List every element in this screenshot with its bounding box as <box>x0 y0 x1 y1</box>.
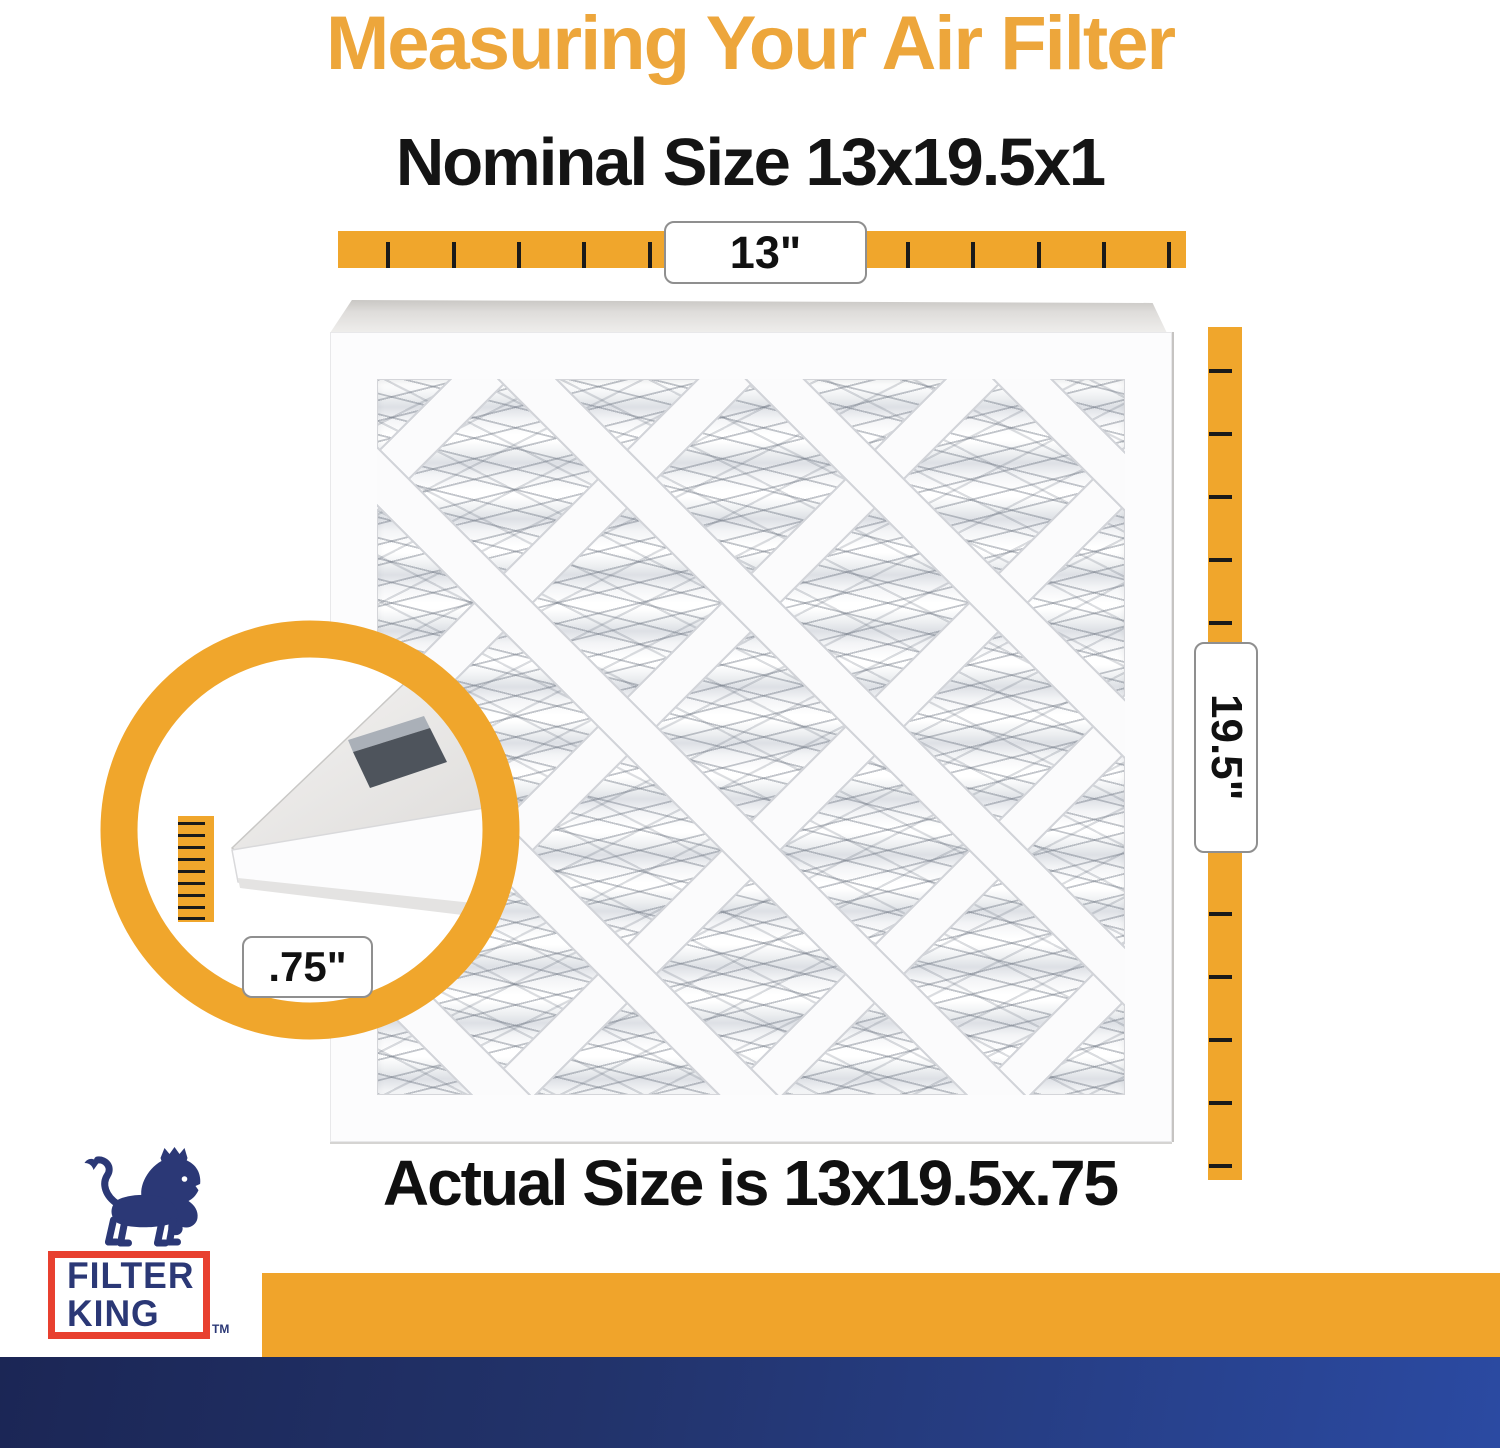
ruler-tick <box>906 242 910 268</box>
height-label-text: 19.5" <box>1201 694 1251 801</box>
filter-king-badge: FILTER KING <box>48 1251 210 1339</box>
ruler-tick <box>1209 975 1232 979</box>
ruler-tick <box>1102 242 1106 268</box>
ruler-tick <box>178 834 205 837</box>
ruler-tick <box>1037 242 1041 268</box>
page-title: Measuring Your Air Filter <box>0 0 1500 87</box>
ruler-tick <box>1209 1038 1232 1042</box>
ruler-tick <box>1209 912 1232 916</box>
ruler-tick <box>582 242 586 268</box>
lion-crown-logo-icon <box>64 1146 242 1258</box>
depth-zoom-circle: .75" <box>100 620 520 1040</box>
ruler-tick <box>386 242 390 268</box>
ruler-tick <box>178 894 205 897</box>
ruler-tick <box>1209 369 1232 373</box>
ruler-tick <box>1209 621 1232 625</box>
nominal-size-heading: Nominal Size 13x19.5x1 <box>0 124 1500 201</box>
ruler-tick <box>971 242 975 268</box>
ruler-tick <box>178 906 205 909</box>
ruler-tick <box>178 882 205 885</box>
accent-orange-bar <box>262 1273 1500 1357</box>
ruler-tick <box>178 822 205 825</box>
footer-navy-bar <box>0 1357 1500 1448</box>
ruler-tick <box>178 917 205 920</box>
ruler-tick <box>648 242 652 268</box>
ruler-tick <box>1167 242 1171 268</box>
depth-measurement-label: .75" <box>242 936 373 998</box>
mini-depth-ruler <box>178 816 214 922</box>
ruler-tick <box>1209 495 1232 499</box>
filter-top-face <box>330 300 1172 333</box>
brand-name-line2: KING <box>67 1295 198 1333</box>
infographic-canvas: Measuring Your Air Filter Nominal Size 1… <box>0 0 1500 1448</box>
ruler-tick <box>1209 1101 1232 1105</box>
ruler-tick <box>517 242 521 268</box>
ruler-tick <box>452 242 456 268</box>
trademark-symbol: TM <box>212 1322 229 1336</box>
ruler-tick <box>1209 432 1232 436</box>
ruler-tick <box>1209 558 1232 562</box>
ruler-tick <box>178 870 205 873</box>
width-measurement-label: 13" <box>664 221 867 284</box>
ruler-tick <box>178 858 205 861</box>
height-measurement-label: 19.5" <box>1194 642 1258 853</box>
brand-name-line1: FILTER <box>67 1257 198 1295</box>
ruler-tick <box>178 846 205 849</box>
